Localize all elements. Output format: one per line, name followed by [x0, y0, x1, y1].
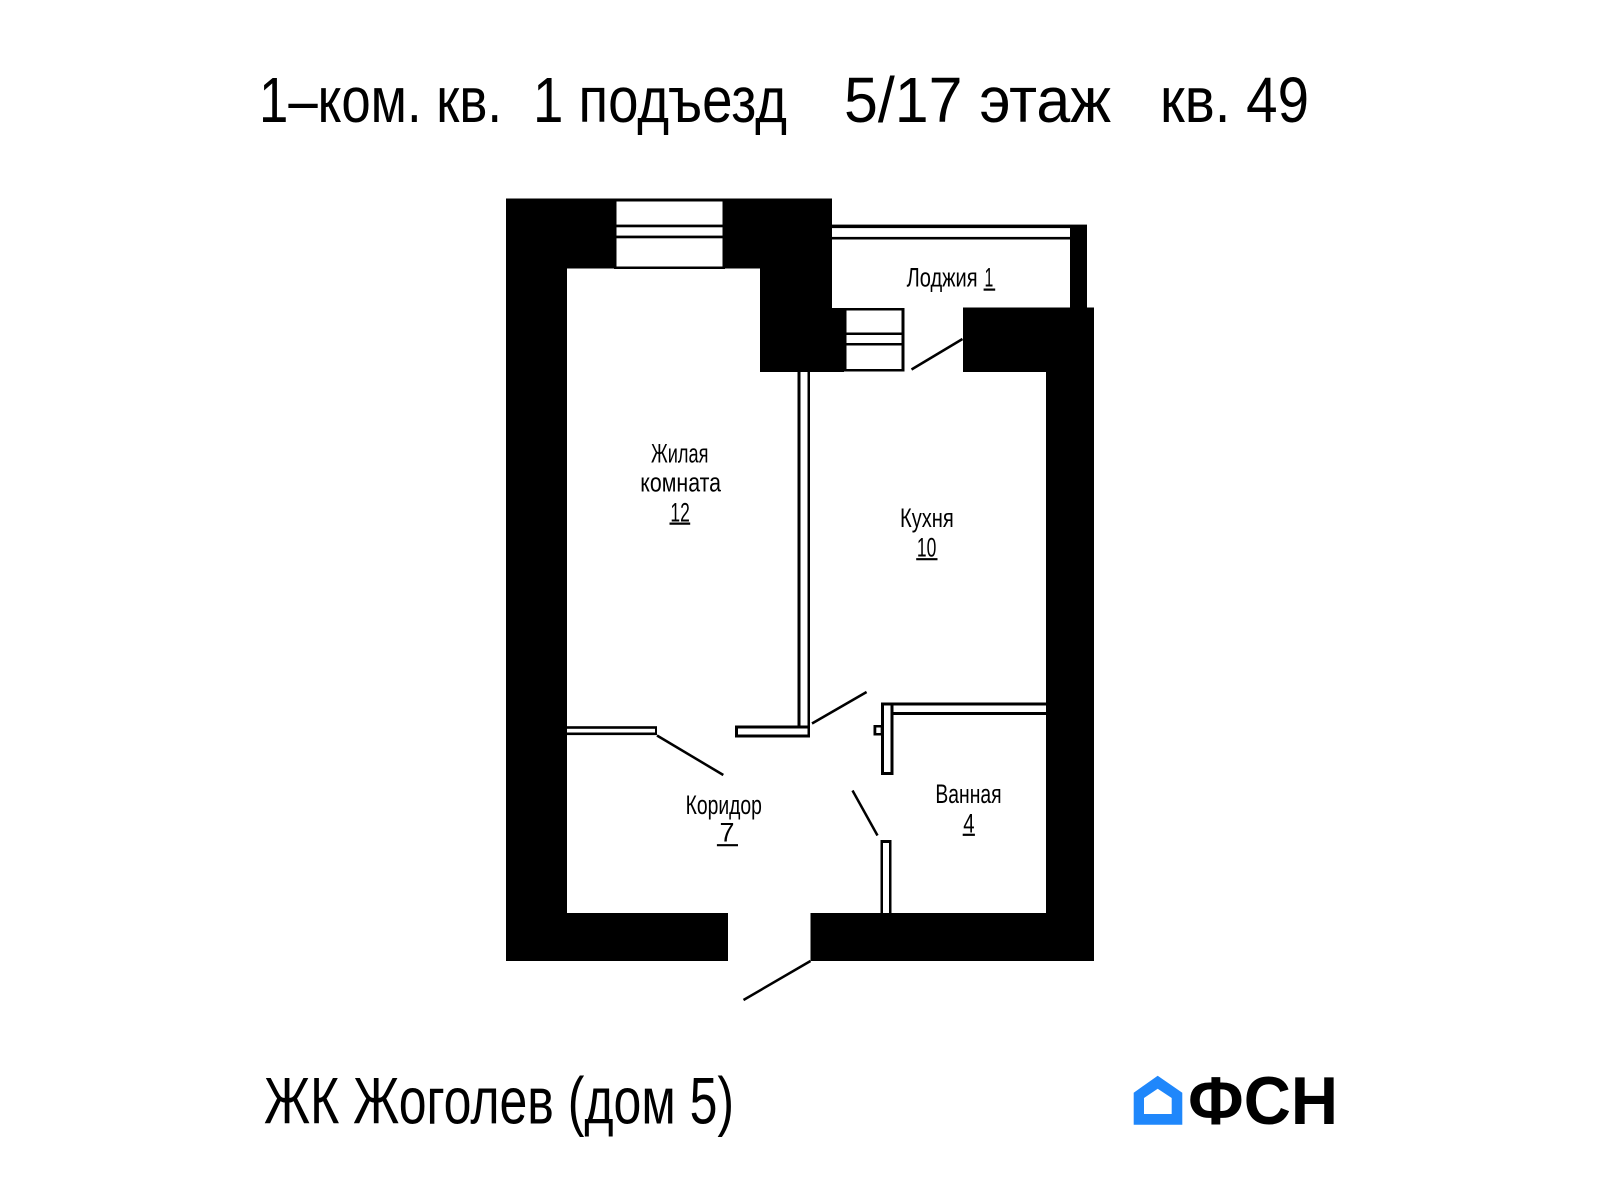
svg-text:комната: комната	[640, 468, 721, 498]
svg-text:ФСН: ФСН	[1188, 1063, 1338, 1139]
svg-text:Коридор: Коридор	[686, 790, 762, 820]
svg-text:Жилая: Жилая	[651, 439, 708, 469]
svg-text:1: 1	[985, 263, 994, 293]
svg-text:7: 7	[720, 818, 735, 848]
svg-text:Ванная: Ванная	[935, 779, 1001, 809]
svg-text:кв. 49: кв. 49	[1160, 64, 1309, 136]
svg-text:ЖК Жоголев (дом 5): ЖК Жоголев (дом 5)	[264, 1064, 734, 1138]
svg-text:Кухня: Кухня	[900, 503, 954, 533]
svg-text:Лоджия: Лоджия	[907, 263, 978, 293]
svg-text:10: 10	[917, 533, 936, 563]
svg-text:1 подъезд: 1 подъезд	[533, 64, 787, 136]
svg-text:1–ком. кв.: 1–ком. кв.	[259, 64, 502, 136]
svg-text:5/17 этаж: 5/17 этаж	[844, 64, 1111, 136]
